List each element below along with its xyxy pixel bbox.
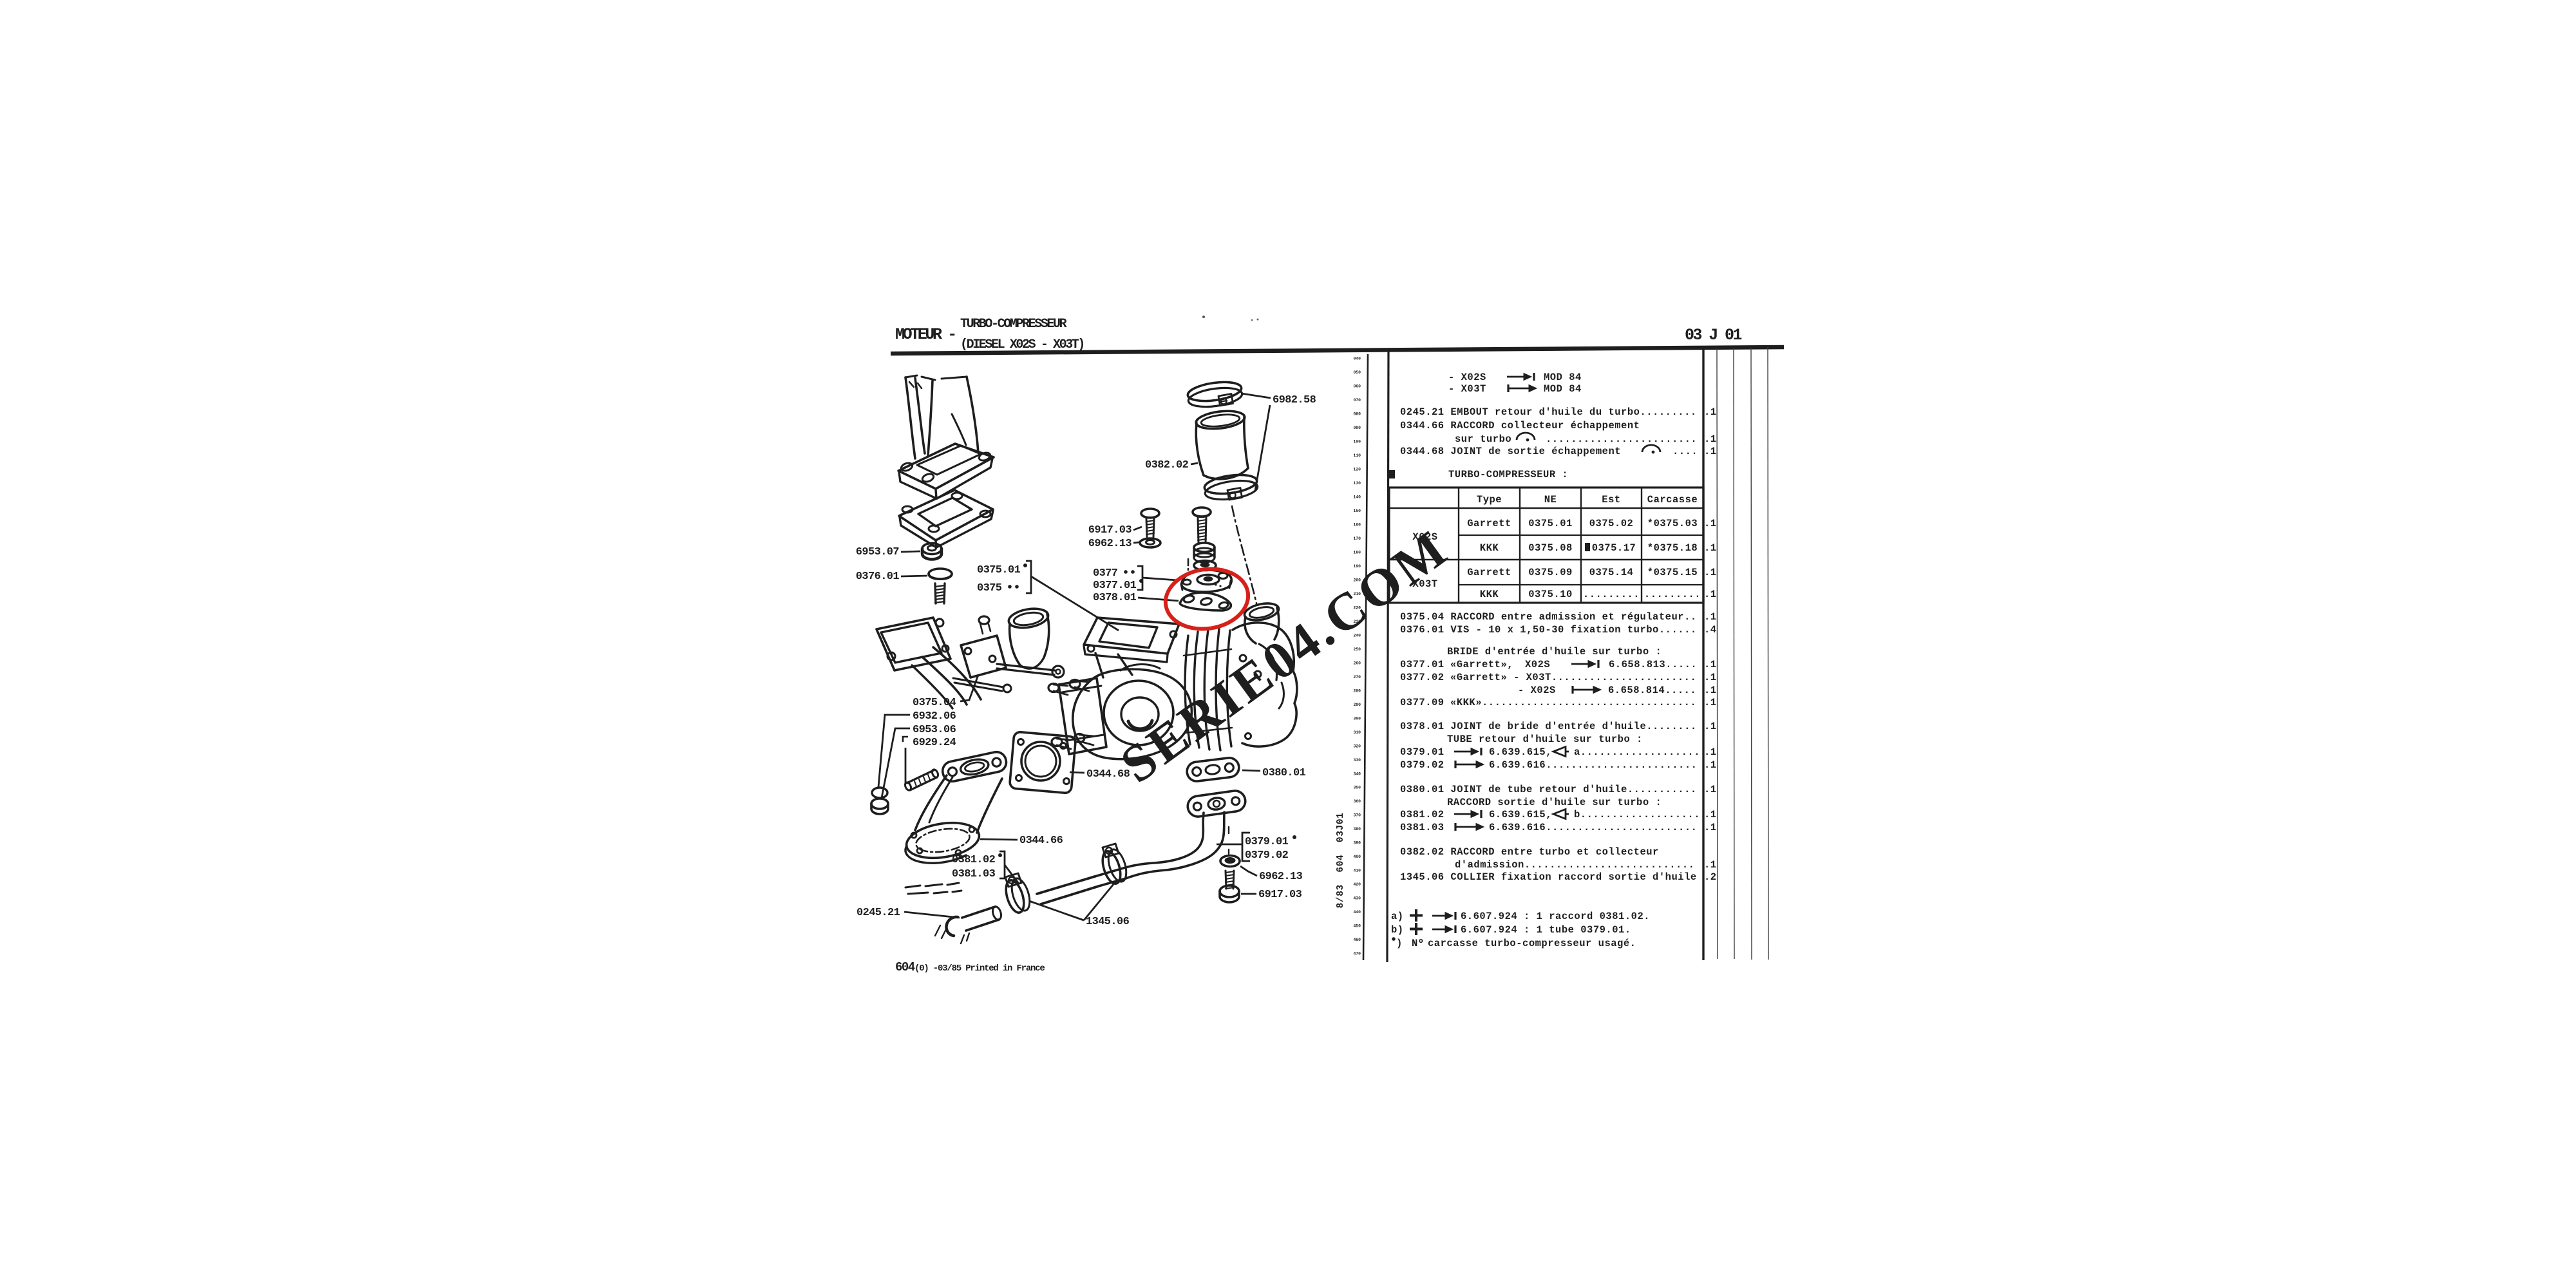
svg-text:.1: .1 bbox=[1704, 567, 1717, 578]
svg-text:X03T: X03T bbox=[1412, 578, 1437, 590]
svg-text:0344.68: 0344.68 bbox=[1086, 768, 1130, 781]
svg-text:100: 100 bbox=[1353, 440, 1361, 444]
svg-text:060: 060 bbox=[1353, 384, 1361, 389]
svg-text:.1: .1 bbox=[1704, 433, 1717, 445]
svg-text:sur turbo: sur turbo bbox=[1455, 433, 1511, 445]
svg-text:0245.21: 0245.21 bbox=[857, 907, 900, 919]
svg-text:270: 270 bbox=[1353, 675, 1361, 679]
svg-text:.1: .1 bbox=[1704, 406, 1717, 418]
svg-text:.2: .2 bbox=[1704, 871, 1717, 883]
svg-text:130: 130 bbox=[1353, 481, 1361, 486]
svg-text:0379.02: 0379.02 bbox=[1245, 849, 1289, 862]
svg-text:- X02S: - X02S bbox=[1448, 372, 1486, 383]
svg-text:NE: NE bbox=[1544, 494, 1557, 506]
svg-text:150: 150 bbox=[1353, 509, 1361, 513]
svg-text:140: 140 bbox=[1353, 495, 1361, 500]
svg-text:0377.02: 0377.02 bbox=[1400, 672, 1444, 683]
svg-text:«KKK».........................: «KKK».................................. bbox=[1450, 697, 1696, 708]
svg-text:0344.66 RACCORD collecteur éch: 0344.66 RACCORD collecteur échappement bbox=[1400, 420, 1640, 431]
svg-text:410: 410 bbox=[1353, 869, 1361, 873]
svg-text:300: 300 bbox=[1353, 716, 1361, 721]
svg-text:0381.03: 0381.03 bbox=[952, 868, 996, 880]
svg-text:6.607.924 : 1 tube 0379.01.: 6.607.924 : 1 tube 0379.01. bbox=[1461, 924, 1631, 936]
svg-text:6.639.615,: 6.639.615, bbox=[1489, 809, 1552, 820]
svg-text:*0375.15: *0375.15 bbox=[1647, 567, 1698, 578]
svg-text:8/83 604 03J01: 8/83 604 03J01 bbox=[1336, 813, 1346, 909]
svg-text:b...................: b................... bbox=[1574, 809, 1700, 820]
svg-text:a): a) bbox=[1391, 911, 1404, 922]
svg-text:390: 390 bbox=[1353, 841, 1361, 846]
svg-text:KKK: KKK bbox=[1480, 542, 1499, 554]
svg-text:0375.01: 0375.01 bbox=[977, 564, 1021, 576]
svg-text:6.658.814.....: 6.658.814..... bbox=[1608, 685, 1696, 696]
svg-text:.1: .1 bbox=[1704, 518, 1717, 529]
svg-text:KKK: KKK bbox=[1480, 589, 1499, 600]
svg-text:6982.58: 6982.58 bbox=[1273, 394, 1316, 406]
svg-text:0378.01 JOINT de bride d'entré: 0378.01 JOINT de bride d'entrée d'huile.… bbox=[1400, 721, 1697, 732]
svg-text:Nº: Nº bbox=[1412, 938, 1425, 949]
svg-text:.4: .4 bbox=[1704, 624, 1717, 636]
svg-text:(0) -03/85 Printed in France: (0) -03/85 Printed in France bbox=[914, 963, 1045, 974]
svg-text:.1: .1 bbox=[1704, 759, 1717, 771]
svg-text:110: 110 bbox=[1353, 453, 1361, 458]
svg-text:0380.01 JOINT de tube retour d: 0380.01 JOINT de tube retour d'huile....… bbox=[1400, 784, 1697, 795]
svg-text:310: 310 bbox=[1353, 730, 1361, 735]
svg-text:160: 160 bbox=[1353, 523, 1361, 527]
svg-text:03 J 01: 03 J 01 bbox=[1685, 326, 1741, 345]
svg-text:.1: .1 bbox=[1704, 809, 1717, 820]
svg-text:0344.66: 0344.66 bbox=[1019, 835, 1063, 847]
svg-text:0379.01: 0379.01 bbox=[1245, 836, 1289, 848]
svg-text:180: 180 bbox=[1353, 550, 1361, 554]
svg-text:0375.08: 0375.08 bbox=[1528, 542, 1573, 554]
svg-text:220: 220 bbox=[1353, 605, 1361, 610]
svg-text:6.639.616.....................: 6.639.616........................ bbox=[1489, 759, 1697, 771]
svg-text:6.639.615,: 6.639.615, bbox=[1489, 746, 1552, 758]
svg-text:6962.13: 6962.13 bbox=[1088, 538, 1132, 550]
svg-text:250: 250 bbox=[1353, 647, 1361, 652]
svg-text:604: 604 bbox=[895, 960, 915, 974]
svg-text:.1: .1 bbox=[1704, 659, 1717, 670]
svg-text:0245.21 EMBOUT retour d'huile: 0245.21 EMBOUT retour d'huile du turbo..… bbox=[1400, 406, 1697, 418]
svg-text:050: 050 bbox=[1353, 370, 1361, 375]
svg-text:X02S: X02S bbox=[1525, 659, 1550, 670]
svg-text:360: 360 bbox=[1353, 799, 1361, 804]
svg-text:.1: .1 bbox=[1704, 611, 1717, 623]
svg-text:0375.10: 0375.10 bbox=[1528, 589, 1573, 600]
svg-text:«Garrett» - X03T..............: «Garrett» - X03T....................... bbox=[1450, 672, 1696, 683]
svg-text:.1: .1 bbox=[1704, 822, 1717, 833]
svg-text:0375.04 RACCORD entre admissio: 0375.04 RACCORD entre admission et régul… bbox=[1400, 611, 1697, 623]
svg-text:6929.24: 6929.24 bbox=[913, 737, 956, 749]
svg-text:0377.01: 0377.01 bbox=[1400, 659, 1444, 670]
svg-text:6962.13: 6962.13 bbox=[1259, 871, 1303, 883]
svg-text:RACCORD sortie d'huile sur tur: RACCORD sortie d'huile sur turbo : bbox=[1447, 797, 1662, 808]
svg-text:370: 370 bbox=[1353, 813, 1361, 818]
svg-text:0382.02 RACCORD entre turbo et: 0382.02 RACCORD entre turbo et collecteu… bbox=[1400, 846, 1659, 858]
svg-text:0376.01: 0376.01 bbox=[856, 571, 900, 583]
svg-text:6.639.616.....................: 6.639.616........................ bbox=[1489, 822, 1697, 833]
svg-text:.........: ......... bbox=[1644, 589, 1701, 600]
svg-text:0375.17: 0375.17 bbox=[1592, 542, 1636, 554]
svg-text:380: 380 bbox=[1353, 827, 1361, 831]
svg-text:....: .... bbox=[1672, 446, 1698, 457]
svg-text:330: 330 bbox=[1353, 758, 1361, 762]
svg-text:Garrett: Garrett bbox=[1467, 518, 1511, 529]
svg-text:210: 210 bbox=[1353, 592, 1361, 596]
svg-text:.1: .1 bbox=[1704, 685, 1717, 696]
svg-text:0379.01: 0379.01 bbox=[1400, 746, 1444, 758]
svg-text:230: 230 bbox=[1353, 620, 1361, 624]
svg-text:.1: .1 bbox=[1704, 859, 1717, 871]
svg-text:0377.09: 0377.09 bbox=[1400, 697, 1444, 708]
svg-text:350: 350 bbox=[1353, 786, 1361, 790]
svg-text:.1: .1 bbox=[1704, 446, 1717, 457]
svg-text:070: 070 bbox=[1353, 398, 1361, 402]
svg-text:450: 450 bbox=[1353, 924, 1361, 929]
svg-text:6917.03: 6917.03 bbox=[1088, 524, 1132, 536]
svg-text:........................: ........................ bbox=[1546, 433, 1697, 445]
svg-text:6953.07: 6953.07 bbox=[856, 546, 900, 558]
svg-text:420: 420 bbox=[1353, 882, 1361, 887]
svg-text:Type: Type bbox=[1477, 494, 1502, 506]
svg-text:0379.02: 0379.02 bbox=[1400, 759, 1444, 771]
svg-text:TURBO-COMPRESSEUR :: TURBO-COMPRESSEUR : bbox=[1448, 469, 1568, 480]
svg-text:a...................: a................... bbox=[1574, 746, 1700, 758]
svg-text:0380.01: 0380.01 bbox=[1262, 767, 1306, 779]
svg-text:260: 260 bbox=[1353, 661, 1361, 665]
svg-text:TURBO-COMPRESSEUR: TURBO-COMPRESSEUR bbox=[960, 317, 1067, 332]
svg-text:240: 240 bbox=[1353, 633, 1361, 638]
svg-text:0377: 0377 bbox=[1093, 567, 1118, 580]
svg-text:.1: .1 bbox=[1704, 542, 1717, 554]
svg-text:MOD 84: MOD 84 bbox=[1544, 372, 1582, 383]
svg-text:.1: .1 bbox=[1704, 672, 1717, 683]
svg-text:«Garrett»,: «Garrett», bbox=[1450, 659, 1513, 670]
svg-text:6953.06: 6953.06 bbox=[913, 724, 956, 736]
svg-text:0377.01: 0377.01 bbox=[1093, 580, 1137, 592]
svg-text:- X03T: - X03T bbox=[1448, 383, 1486, 395]
svg-text:0375.14: 0375.14 bbox=[1589, 567, 1634, 578]
svg-text:320: 320 bbox=[1353, 744, 1361, 748]
svg-text:1345.06: 1345.06 bbox=[1086, 916, 1130, 928]
svg-text:200: 200 bbox=[1353, 578, 1361, 582]
svg-text:0381.02: 0381.02 bbox=[952, 854, 996, 866]
svg-text:170: 170 bbox=[1353, 536, 1361, 541]
svg-text:080: 080 bbox=[1353, 412, 1361, 417]
svg-text:290: 290 bbox=[1353, 703, 1361, 707]
svg-text:.1: .1 bbox=[1704, 589, 1717, 600]
svg-text:0375.01: 0375.01 bbox=[1528, 518, 1573, 529]
svg-text:.1: .1 bbox=[1704, 784, 1717, 795]
svg-text:MOTEUR -: MOTEUR - bbox=[895, 325, 955, 344]
svg-text:0382.02: 0382.02 bbox=[1145, 459, 1189, 471]
svg-text:340: 340 bbox=[1353, 772, 1361, 776]
svg-text:040: 040 bbox=[1353, 357, 1361, 361]
svg-text:6.658.813.....: 6.658.813..... bbox=[1609, 659, 1697, 670]
svg-text:*0375.18: *0375.18 bbox=[1647, 542, 1698, 554]
svg-text:): ) bbox=[1396, 938, 1403, 949]
svg-text:- X02S: - X02S bbox=[1518, 685, 1556, 696]
svg-text:TUBE retour d'huile sur turbo: TUBE retour d'huile sur turbo : bbox=[1447, 734, 1643, 745]
svg-text:430: 430 bbox=[1353, 896, 1361, 901]
svg-text:400: 400 bbox=[1353, 855, 1361, 859]
svg-text:(DIESEL X02S - X03T): (DIESEL X02S - X03T) bbox=[960, 337, 1084, 352]
svg-text:0344.68 JOINT de sortie échapp: 0344.68 JOINT de sortie échappement bbox=[1400, 446, 1621, 457]
svg-text:carcasse turbo-compresseur usa: carcasse turbo-compresseur usagé. bbox=[1428, 938, 1636, 949]
svg-text:190: 190 bbox=[1353, 564, 1361, 569]
svg-text:.1: .1 bbox=[1704, 697, 1717, 708]
svg-text:460: 460 bbox=[1353, 938, 1361, 942]
svg-text:470: 470 bbox=[1353, 952, 1361, 956]
svg-text:.........: ......... bbox=[1583, 589, 1640, 600]
svg-text:MOD 84: MOD 84 bbox=[1544, 383, 1582, 395]
svg-text:0378.01: 0378.01 bbox=[1093, 592, 1137, 604]
svg-text:Carcasse: Carcasse bbox=[1647, 494, 1698, 506]
svg-text:6932.06: 6932.06 bbox=[913, 710, 956, 723]
svg-text:1345.06 COLLIER fixation racco: 1345.06 COLLIER fixation raccord sortie … bbox=[1400, 871, 1697, 883]
svg-text:6917.03: 6917.03 bbox=[1258, 889, 1302, 901]
svg-text:090: 090 bbox=[1353, 426, 1361, 430]
svg-text:BRIDE d'entrée d'huile sur tur: BRIDE d'entrée d'huile sur turbo : bbox=[1447, 646, 1662, 658]
svg-text:0375.04: 0375.04 bbox=[913, 697, 956, 709]
svg-text:0381.03: 0381.03 bbox=[1400, 822, 1444, 833]
svg-text:0375.02: 0375.02 bbox=[1589, 518, 1634, 529]
svg-text:b): b) bbox=[1391, 924, 1404, 936]
svg-text:X02S: X02S bbox=[1412, 531, 1437, 543]
svg-text:d'admission...................: d'admission........................... bbox=[1455, 859, 1694, 871]
svg-text:*0375.03: *0375.03 bbox=[1647, 518, 1698, 529]
svg-text:0375.09: 0375.09 bbox=[1528, 567, 1573, 578]
svg-text:.1: .1 bbox=[1704, 721, 1717, 732]
svg-text:0375: 0375 bbox=[977, 582, 1002, 594]
svg-text:440: 440 bbox=[1353, 910, 1361, 914]
svg-text:0376.01 VIS - 10 x 1,50-30 fix: 0376.01 VIS - 10 x 1,50-30 fixation turb… bbox=[1400, 624, 1697, 636]
svg-text:.1: .1 bbox=[1704, 746, 1717, 758]
svg-text:280: 280 bbox=[1353, 688, 1361, 693]
svg-text:0381.02: 0381.02 bbox=[1400, 809, 1444, 820]
svg-text:Est: Est bbox=[1602, 494, 1620, 506]
svg-text:Garrett: Garrett bbox=[1467, 567, 1511, 578]
svg-text:6.607.924 : 1 raccord 0381.02.: 6.607.924 : 1 raccord 0381.02. bbox=[1461, 911, 1650, 922]
svg-text:120: 120 bbox=[1353, 468, 1361, 472]
